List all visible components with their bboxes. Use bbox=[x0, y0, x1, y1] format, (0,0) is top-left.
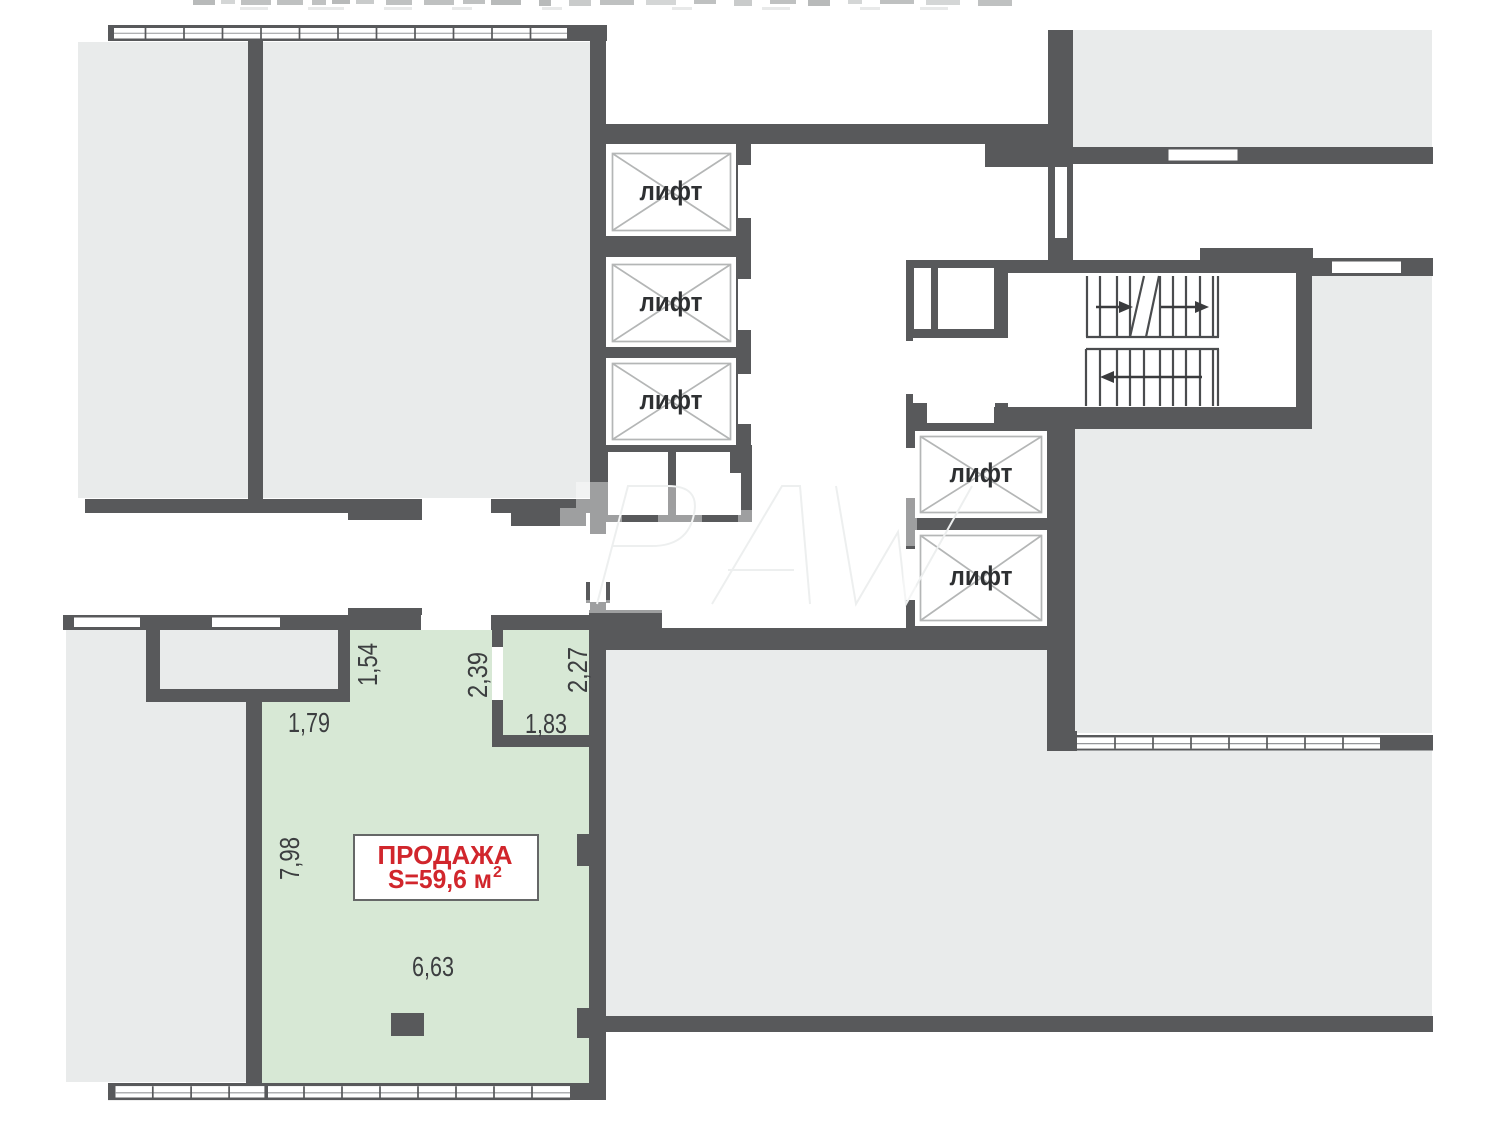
svg-text:лифт: лифт bbox=[640, 176, 703, 206]
svg-text:лифт: лифт bbox=[640, 287, 703, 317]
svg-text:лифт: лифт bbox=[950, 561, 1013, 591]
svg-text:2,27: 2,27 bbox=[562, 647, 593, 693]
svg-text:7,98: 7,98 bbox=[274, 837, 305, 880]
svg-text:лифт: лифт bbox=[640, 385, 703, 415]
svg-text:1,54: 1,54 bbox=[352, 643, 383, 686]
svg-text:лифт: лифт bbox=[950, 458, 1013, 488]
svg-text:2: 2 bbox=[493, 864, 502, 881]
svg-text:S=59,6 м: S=59,6 м bbox=[388, 864, 492, 894]
svg-text:1,83: 1,83 bbox=[525, 708, 567, 739]
svg-text:1,79: 1,79 bbox=[288, 707, 330, 738]
svg-text:6,63: 6,63 bbox=[412, 951, 454, 982]
svg-text:2,39: 2,39 bbox=[462, 652, 493, 698]
